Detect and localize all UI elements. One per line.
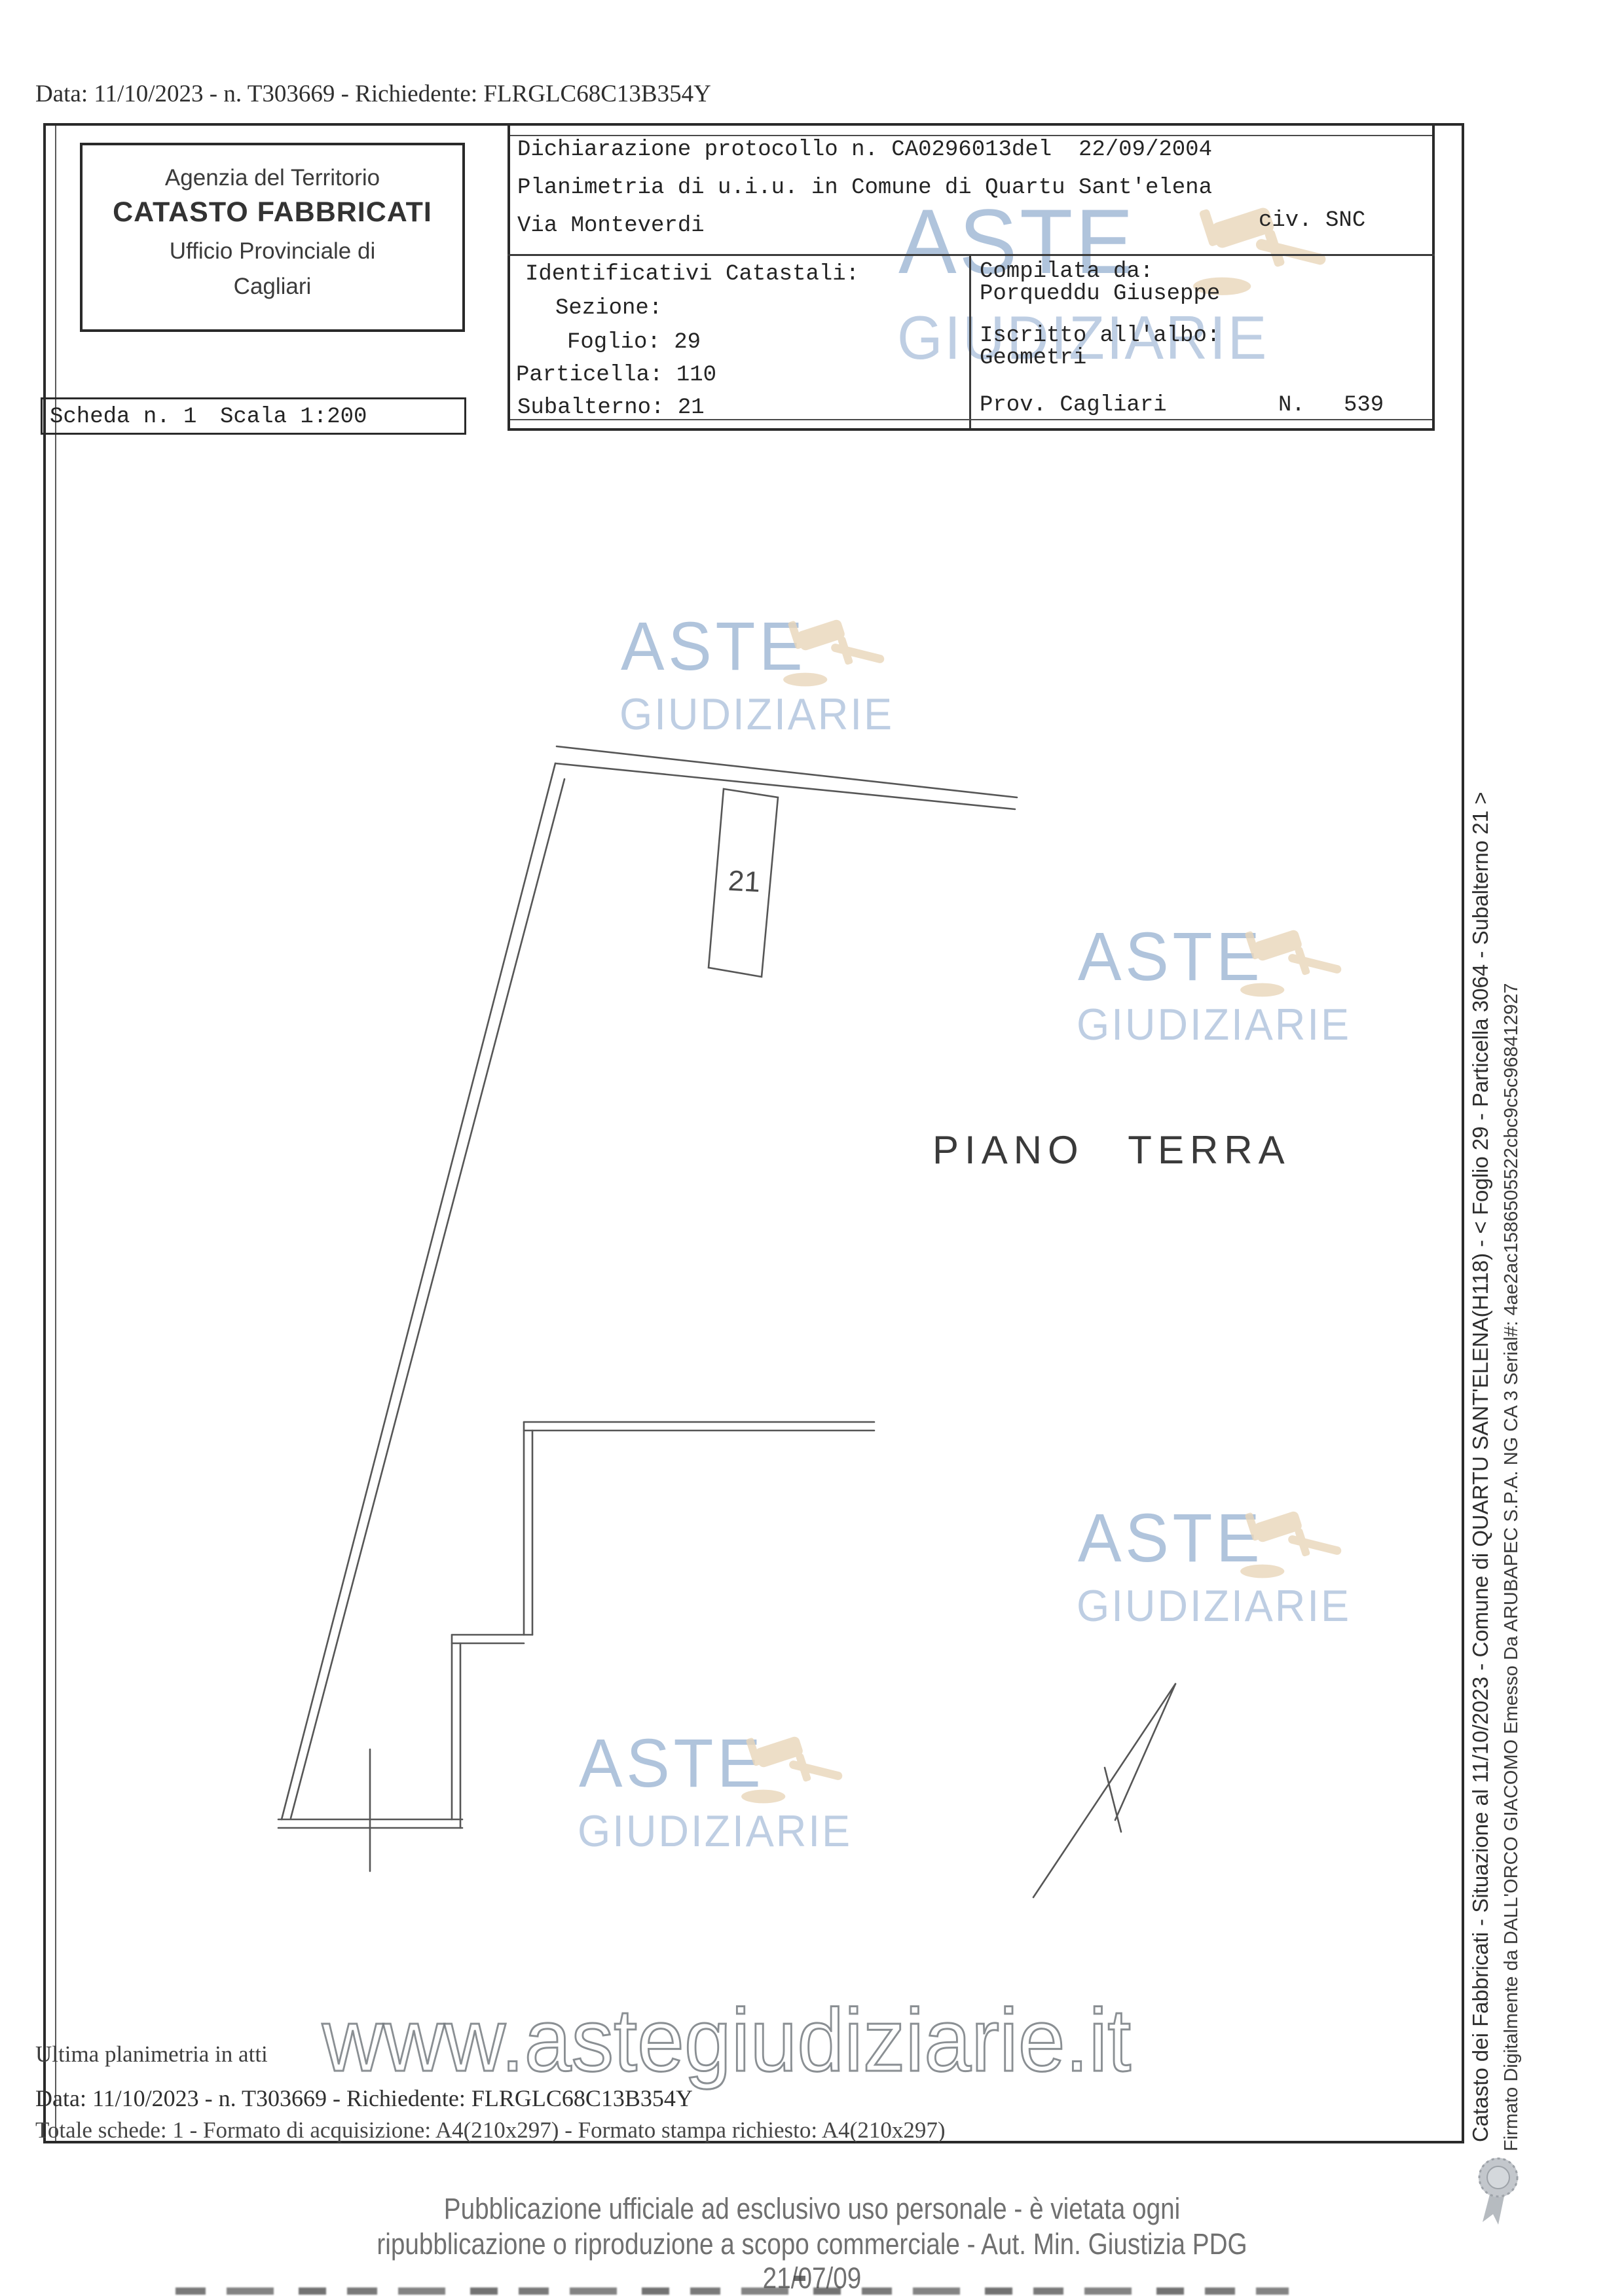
- cadastral-document-page: Data: 11/10/2023 - n. T303669 - Richiede…: [0, 0, 1624, 2296]
- parcel-number-label: 21: [728, 865, 762, 899]
- footer-ultima-line: Ultima planimetria in atti: [35, 2041, 268, 2068]
- floor-plan-drawing: [0, 0, 1624, 2296]
- url-watermark-text: www.astegiudiziarie.it: [322, 1989, 1131, 2091]
- floor-name-label: PIANO TERRA: [932, 1127, 1291, 1173]
- footer-totale-line: Totale schede: 1 - Formato di acquisizio…: [35, 2117, 946, 2143]
